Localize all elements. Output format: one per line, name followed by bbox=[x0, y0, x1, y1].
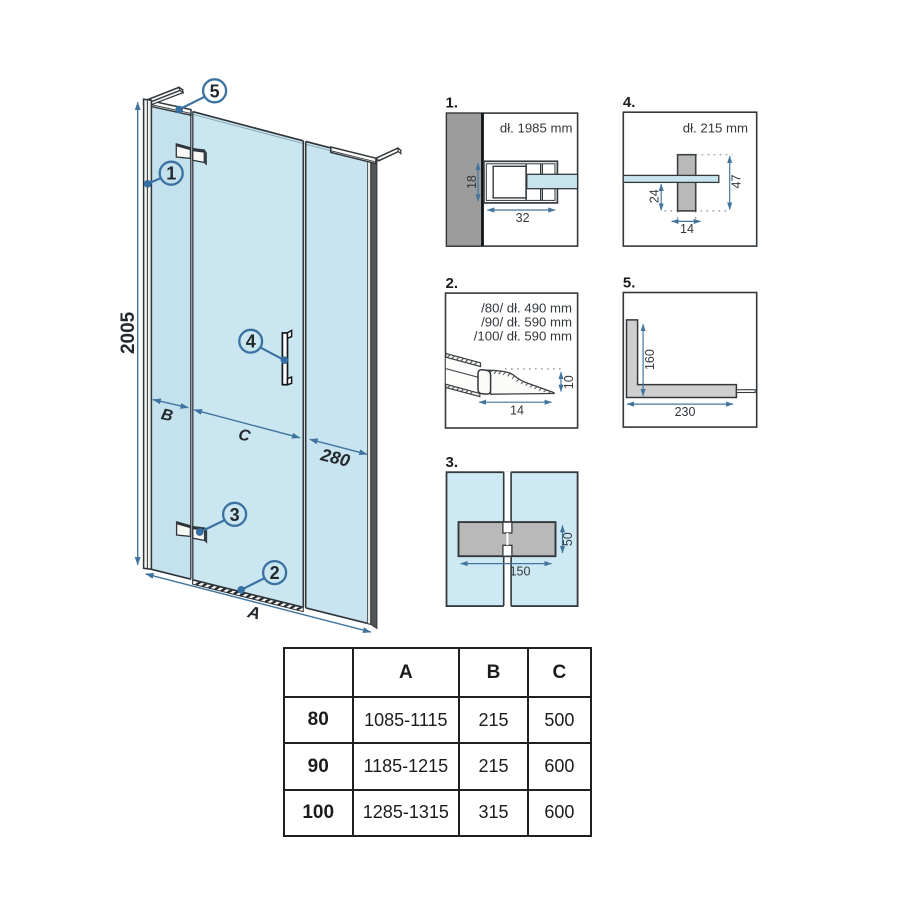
svg-text:3.: 3. bbox=[446, 454, 459, 471]
svg-text:A: A bbox=[245, 602, 262, 623]
svg-text:2: 2 bbox=[270, 563, 280, 583]
svg-text:14: 14 bbox=[510, 403, 524, 417]
svg-text:5.: 5. bbox=[623, 274, 636, 291]
svg-text:150: 150 bbox=[510, 564, 531, 578]
svg-text:/100/ dł. 590 mm: /100/ dł. 590 mm bbox=[474, 328, 572, 343]
svg-text:2005: 2005 bbox=[118, 311, 139, 354]
svg-text:dł. 215 mm: dł. 215 mm bbox=[683, 120, 748, 135]
svg-text:50: 50 bbox=[561, 532, 575, 546]
svg-text:230: 230 bbox=[675, 405, 696, 419]
svg-text:dł. 1985 mm: dł. 1985 mm bbox=[500, 120, 573, 135]
svg-text:47: 47 bbox=[730, 175, 744, 189]
svg-text:14: 14 bbox=[680, 222, 694, 236]
svg-text:10: 10 bbox=[562, 375, 576, 389]
svg-text:18: 18 bbox=[465, 175, 479, 189]
svg-text:4: 4 bbox=[246, 332, 256, 352]
svg-text:160: 160 bbox=[643, 349, 657, 370]
svg-text:1.: 1. bbox=[446, 95, 459, 112]
svg-text:/90/ dł. 590 mm: /90/ dł. 590 mm bbox=[481, 314, 572, 329]
svg-text:3: 3 bbox=[230, 505, 240, 525]
svg-text:/80/ dł. 490 mm: /80/ dł. 490 mm bbox=[481, 300, 572, 315]
svg-text:32: 32 bbox=[516, 211, 530, 225]
svg-text:1: 1 bbox=[166, 164, 176, 184]
svg-text:4.: 4. bbox=[623, 94, 636, 111]
svg-text:2.: 2. bbox=[446, 275, 459, 292]
svg-text:5: 5 bbox=[210, 81, 220, 101]
svg-text:24: 24 bbox=[648, 189, 662, 203]
